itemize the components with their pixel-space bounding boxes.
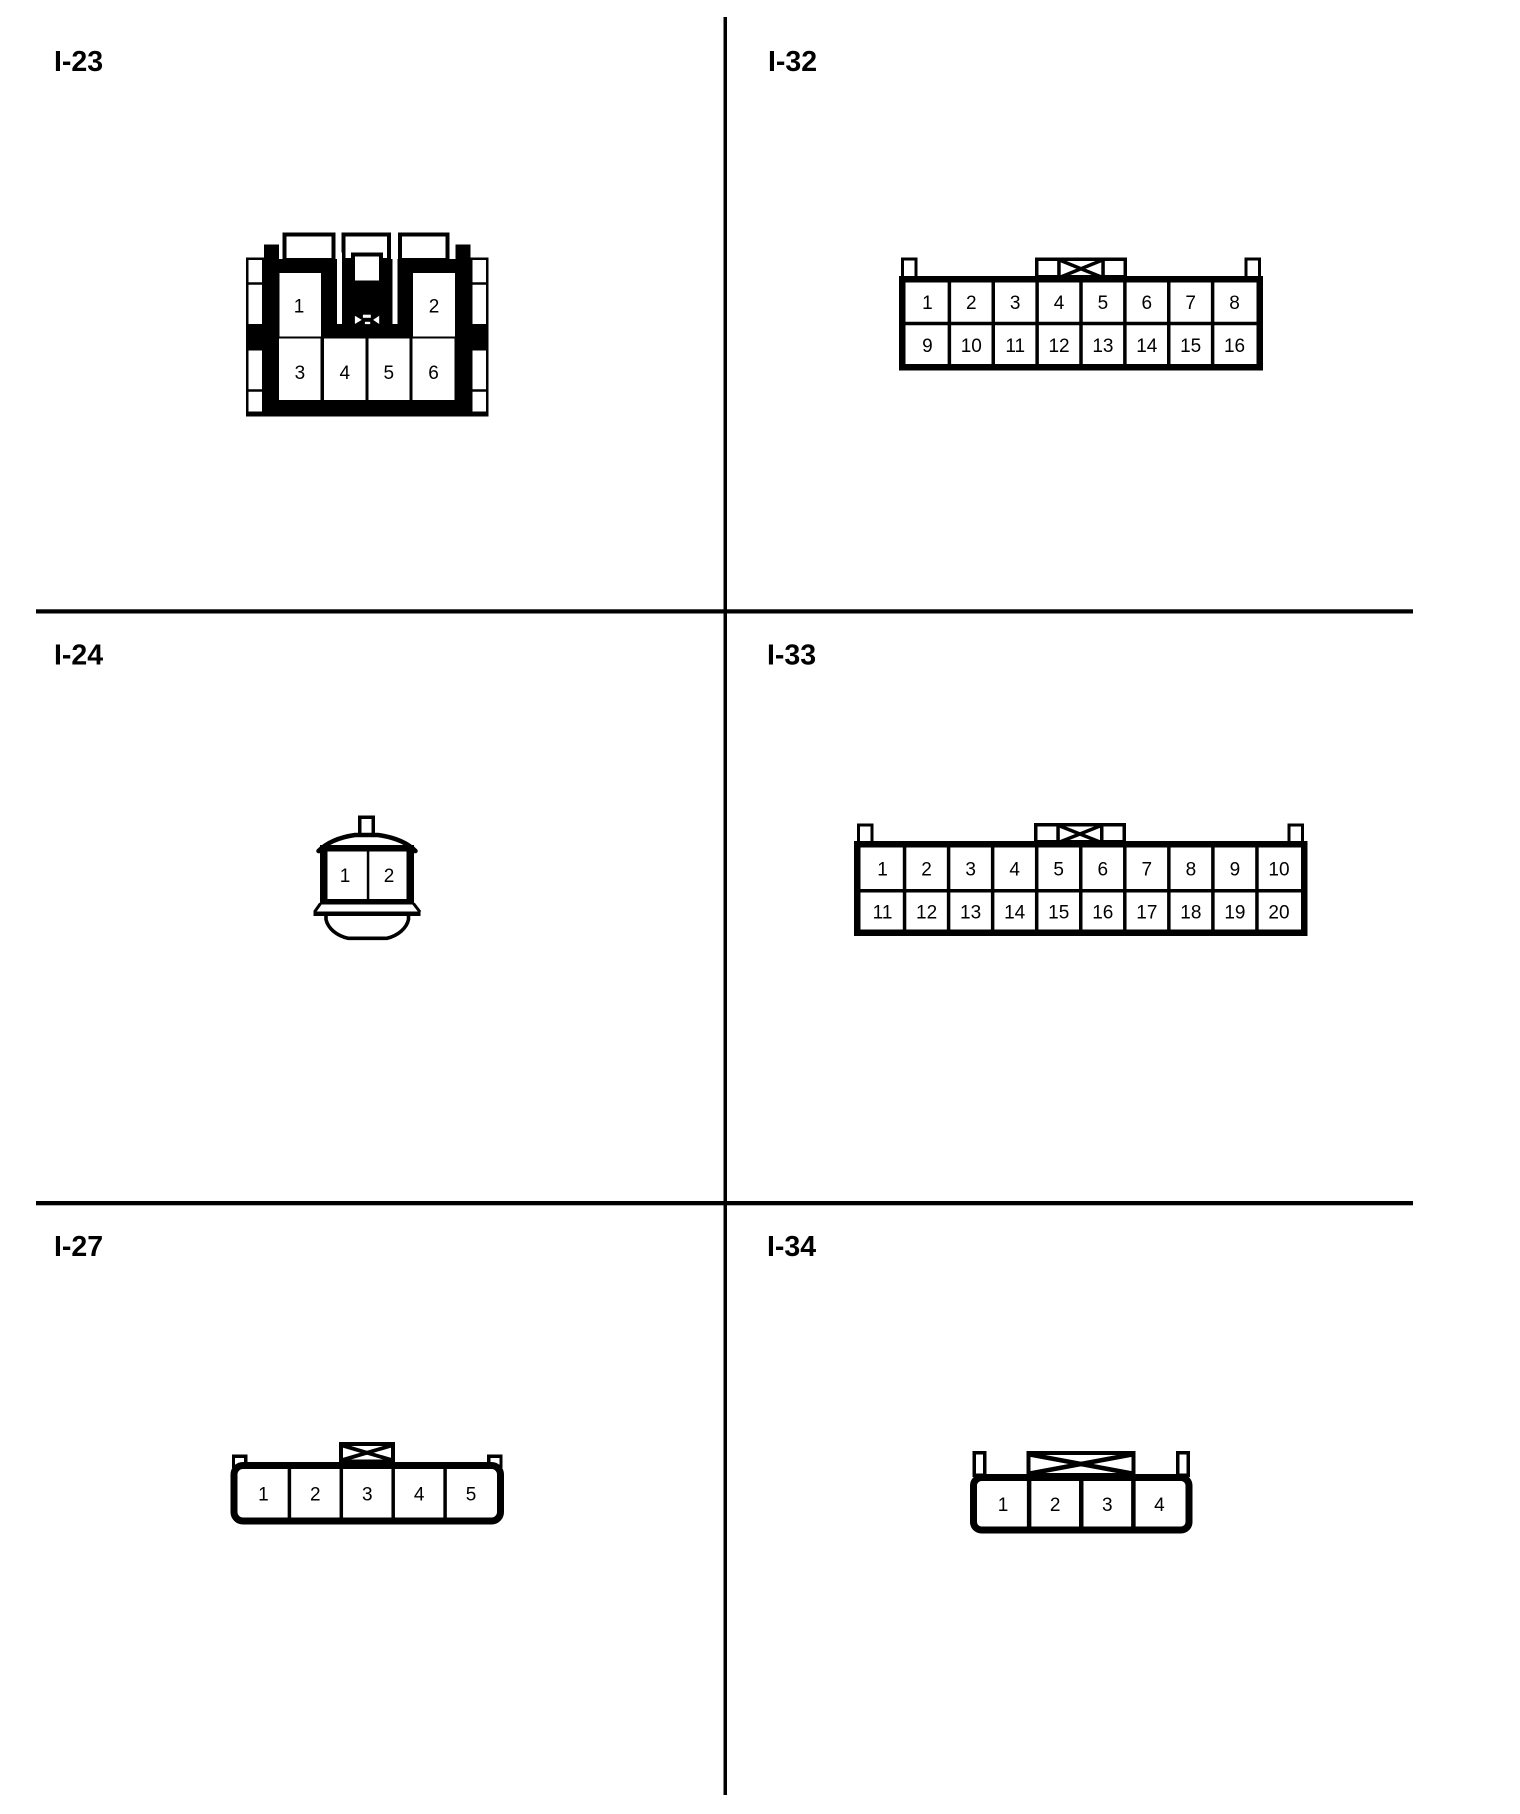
svg-text:11: 11 — [1005, 336, 1025, 357]
svg-text:14: 14 — [1004, 903, 1026, 924]
svg-text:2: 2 — [1050, 1495, 1061, 1516]
svg-text:4: 4 — [1009, 859, 1020, 880]
svg-text:20: 20 — [1268, 903, 1289, 924]
svg-text:9: 9 — [922, 336, 933, 357]
svg-text:15: 15 — [1048, 903, 1069, 924]
svg-text:3: 3 — [362, 1485, 373, 1506]
svg-text:4: 4 — [340, 363, 351, 384]
svg-text:2: 2 — [921, 859, 932, 880]
svg-text:3: 3 — [1102, 1495, 1113, 1516]
svg-text:5: 5 — [466, 1485, 477, 1506]
svg-text:3: 3 — [295, 363, 306, 384]
svg-text:18: 18 — [1180, 903, 1201, 924]
svg-text:2: 2 — [429, 297, 440, 318]
svg-text:14: 14 — [1136, 336, 1158, 357]
svg-text:1: 1 — [340, 866, 351, 887]
svg-text:6: 6 — [428, 363, 439, 384]
svg-text:4: 4 — [414, 1485, 425, 1506]
svg-text:17: 17 — [1136, 903, 1157, 924]
svg-text:I-23: I-23 — [54, 46, 103, 78]
svg-text:I-27: I-27 — [54, 1231, 103, 1263]
svg-text:5: 5 — [384, 363, 395, 384]
svg-text:1: 1 — [998, 1495, 1009, 1516]
svg-text:11: 11 — [873, 903, 893, 924]
svg-text:4: 4 — [1054, 293, 1065, 314]
svg-text:I-32: I-32 — [768, 46, 817, 78]
svg-text:1: 1 — [294, 297, 305, 318]
svg-text:1: 1 — [258, 1485, 269, 1506]
svg-text:10: 10 — [961, 336, 982, 357]
svg-text:16: 16 — [1092, 903, 1113, 924]
svg-text:I-33: I-33 — [767, 640, 816, 672]
svg-text:13: 13 — [960, 903, 981, 924]
svg-text:4: 4 — [1154, 1495, 1165, 1516]
svg-text:2: 2 — [966, 293, 977, 314]
svg-text:7: 7 — [1142, 859, 1153, 880]
svg-text:13: 13 — [1092, 336, 1113, 357]
svg-text:8: 8 — [1186, 859, 1197, 880]
svg-text:7: 7 — [1185, 293, 1196, 314]
svg-text:I-24: I-24 — [54, 640, 103, 672]
svg-text:3: 3 — [1010, 293, 1021, 314]
svg-text:8: 8 — [1229, 293, 1240, 314]
svg-text:12: 12 — [916, 903, 937, 924]
svg-text:6: 6 — [1142, 293, 1153, 314]
svg-text:5: 5 — [1098, 293, 1109, 314]
svg-text:10: 10 — [1268, 859, 1289, 880]
svg-text:2: 2 — [310, 1485, 321, 1506]
svg-text:3: 3 — [965, 859, 976, 880]
svg-text:I-34: I-34 — [767, 1231, 816, 1263]
svg-text:1: 1 — [922, 293, 933, 314]
svg-text:19: 19 — [1224, 903, 1245, 924]
svg-text:1: 1 — [877, 859, 888, 880]
svg-text:15: 15 — [1180, 336, 1201, 357]
svg-text:6: 6 — [1097, 859, 1108, 880]
svg-text:2: 2 — [384, 866, 395, 887]
svg-text:12: 12 — [1048, 336, 1069, 357]
svg-text:5: 5 — [1053, 859, 1064, 880]
svg-text:9: 9 — [1230, 859, 1241, 880]
svg-text:16: 16 — [1224, 336, 1245, 357]
